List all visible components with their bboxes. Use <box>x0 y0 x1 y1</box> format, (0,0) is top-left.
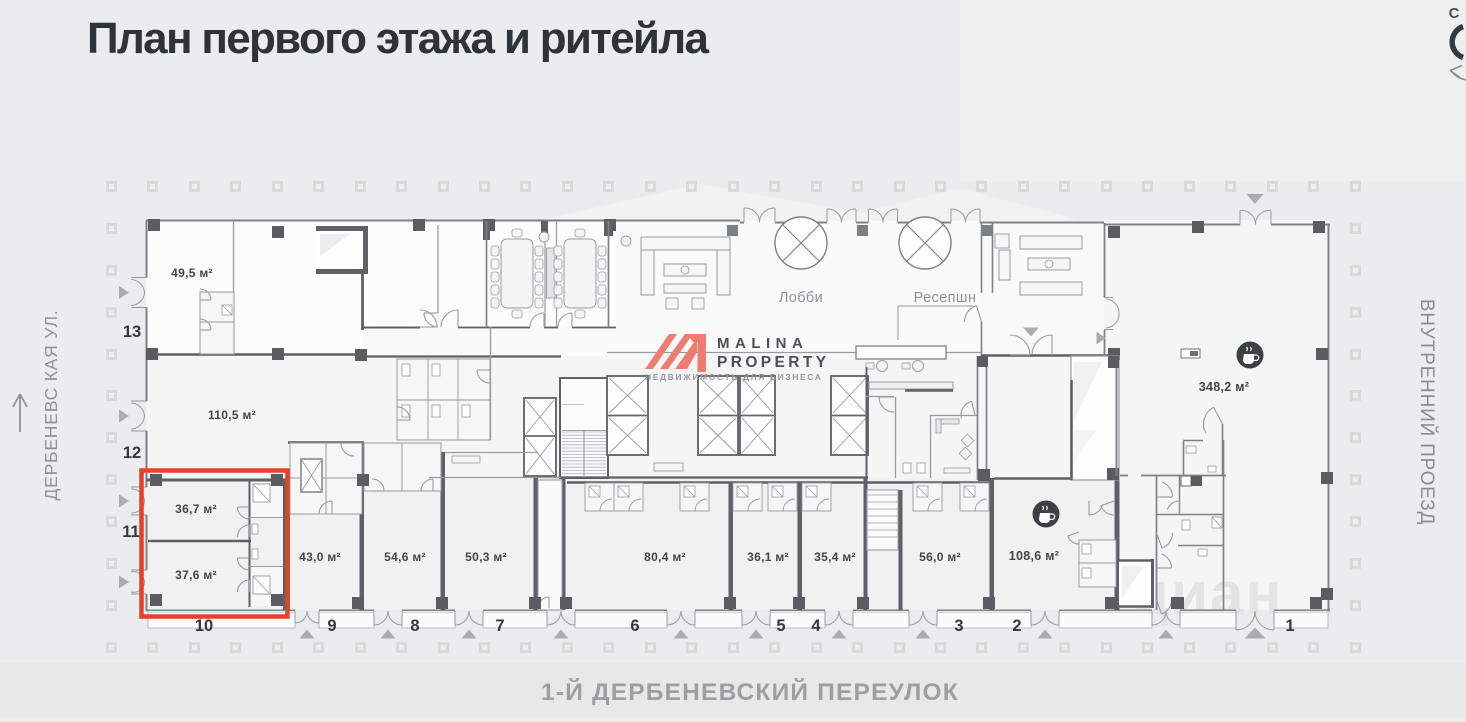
svg-text:43,0 м²: 43,0 м² <box>299 550 341 564</box>
svg-text:36,1 м²: 36,1 м² <box>747 550 789 564</box>
svg-text:50,3 м²: 50,3 м² <box>465 550 507 564</box>
svg-text:56,0 м²: 56,0 м² <box>919 550 961 564</box>
svg-text:С: С <box>1449 5 1460 22</box>
svg-text:36,7 м²: 36,7 м² <box>175 502 217 516</box>
svg-text:6: 6 <box>630 617 639 635</box>
svg-text:3: 3 <box>954 617 963 635</box>
svg-text:10: 10 <box>195 617 213 635</box>
svg-text:13: 13 <box>123 323 141 341</box>
svg-text:2: 2 <box>1012 617 1021 635</box>
svg-text:35,4 м²: 35,4 м² <box>814 550 856 564</box>
svg-text:План первого этажа и ритейла: План первого этажа и ритейла <box>87 14 709 63</box>
svg-text:PROPERTY: PROPERTY <box>717 354 829 371</box>
svg-text:108,6 м²: 108,6 м² <box>1009 549 1060 563</box>
svg-text:Ресепшн: Ресепшн <box>914 290 977 306</box>
svg-text:MALINA: MALINA <box>717 335 808 352</box>
svg-text:5: 5 <box>776 617 785 635</box>
svg-text:ВНУТРЕННИЙ ПРОЕЗД: ВНУТРЕННИЙ ПРОЕЗД <box>1416 299 1438 525</box>
svg-text:1: 1 <box>1285 617 1294 635</box>
svg-text:9: 9 <box>327 617 336 635</box>
svg-text:ДЕРБЕНЕВС КАЯ УЛ.: ДЕРБЕНЕВС КАЯ УЛ. <box>41 309 61 500</box>
svg-text:8: 8 <box>410 617 419 635</box>
svg-text:НЕДВИЖИМОСТЬ ДЛЯ БИЗНЕСА: НЕДВИЖИМОСТЬ ДЛЯ БИЗНЕСА <box>645 372 823 382</box>
svg-text:49,5 м²: 49,5 м² <box>171 266 213 280</box>
svg-text:80,4 м²: 80,4 м² <box>644 550 686 564</box>
svg-text:348,2 м²: 348,2 м² <box>1199 380 1250 394</box>
svg-text:37,6 м²: 37,6 м² <box>175 568 217 582</box>
svg-text:110,5 м²: 110,5 м² <box>208 408 256 422</box>
svg-text:4: 4 <box>811 617 821 635</box>
svg-text:1-Й ДЕРБЕНЕВСКИЙ ПЕРЕУЛОК: 1-Й ДЕРБЕНЕВСКИЙ ПЕРЕУЛОК <box>541 678 959 706</box>
svg-text:12: 12 <box>123 444 141 462</box>
svg-text:7: 7 <box>495 617 504 635</box>
svg-text:11: 11 <box>122 523 139 541</box>
svg-text:Лобби: Лобби <box>779 290 823 306</box>
svg-text:54,6 м²: 54,6 м² <box>384 550 426 564</box>
